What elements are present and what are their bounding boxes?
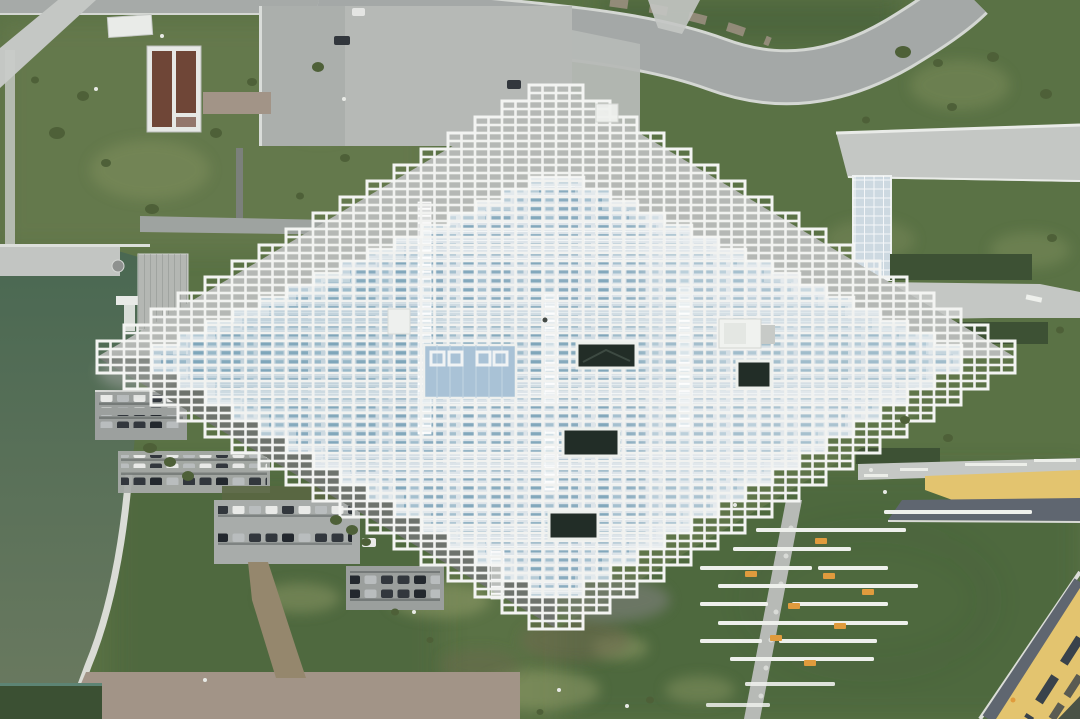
narrow-path	[236, 148, 243, 224]
planting-bed	[890, 254, 1032, 280]
roof-white-structure	[596, 104, 618, 122]
parked-car	[334, 36, 350, 45]
roof-vent-opening	[549, 512, 598, 539]
shrub	[296, 193, 304, 200]
parked-car-row	[350, 571, 440, 584]
maintenance-building-roof	[147, 46, 201, 132]
shrub	[77, 91, 89, 101]
shrub	[49, 127, 65, 139]
gravel-path	[203, 92, 271, 114]
shrub	[987, 52, 999, 62]
shrub	[340, 154, 350, 162]
shrub	[247, 78, 257, 86]
roof-vent-opening	[737, 361, 771, 388]
shrub	[182, 471, 194, 481]
bollard	[412, 610, 416, 614]
bollard	[342, 97, 346, 101]
north-plaza-west	[262, 6, 345, 146]
asphalt-path	[888, 498, 1080, 521]
bollard	[625, 704, 629, 708]
shrub	[312, 62, 324, 72]
parked-car-row	[121, 455, 267, 468]
bollard	[883, 490, 887, 494]
shrub	[210, 128, 222, 138]
shrub	[900, 416, 910, 424]
shrub	[330, 515, 342, 525]
shrub	[646, 697, 654, 704]
quay	[0, 244, 120, 276]
plaza-curb	[259, 6, 262, 146]
storage-shed-roof	[107, 14, 152, 37]
quay-fitting	[112, 260, 124, 272]
shrub	[862, 117, 870, 124]
bollard	[557, 688, 561, 692]
roof-white-panel	[388, 309, 410, 334]
gravel-yard	[66, 672, 520, 719]
parked-car-row	[99, 415, 183, 428]
skylight-panel	[424, 345, 516, 398]
shrub	[1056, 327, 1064, 334]
quay-edge	[0, 244, 150, 247]
roof-vent-opening	[577, 343, 636, 368]
roof-vent-opening	[563, 429, 619, 456]
shrub	[145, 204, 159, 214]
shrub	[391, 609, 399, 616]
shrub	[895, 46, 911, 58]
shrub	[101, 159, 111, 167]
shrub	[933, 59, 943, 67]
bollard	[94, 87, 98, 91]
bollard	[733, 503, 737, 507]
shrub	[346, 525, 358, 535]
person-dot	[1011, 698, 1016, 703]
shrub	[143, 443, 157, 453]
parked-car-row	[350, 589, 440, 602]
roof-dot	[543, 318, 548, 323]
parked-car	[507, 80, 521, 89]
shrub	[164, 457, 176, 467]
hedge-corner	[0, 686, 102, 719]
aerial-photo-canvas	[0, 0, 1080, 719]
shrub	[1040, 89, 1052, 99]
bollard	[160, 34, 164, 38]
shrub	[943, 434, 953, 442]
west-path	[5, 50, 15, 255]
bollard	[203, 678, 207, 682]
shrub	[427, 637, 434, 643]
parked-car	[352, 8, 365, 16]
shrub	[947, 103, 957, 111]
shrub	[1047, 234, 1057, 242]
parked-car-row	[121, 472, 267, 485]
shrub	[361, 538, 371, 546]
shrub	[31, 77, 39, 84]
bollard	[869, 468, 873, 472]
path-edge	[888, 521, 1080, 522]
shrub	[537, 709, 544, 715]
parked-car-row	[218, 532, 352, 545]
pool-edge-line	[0, 683, 102, 686]
